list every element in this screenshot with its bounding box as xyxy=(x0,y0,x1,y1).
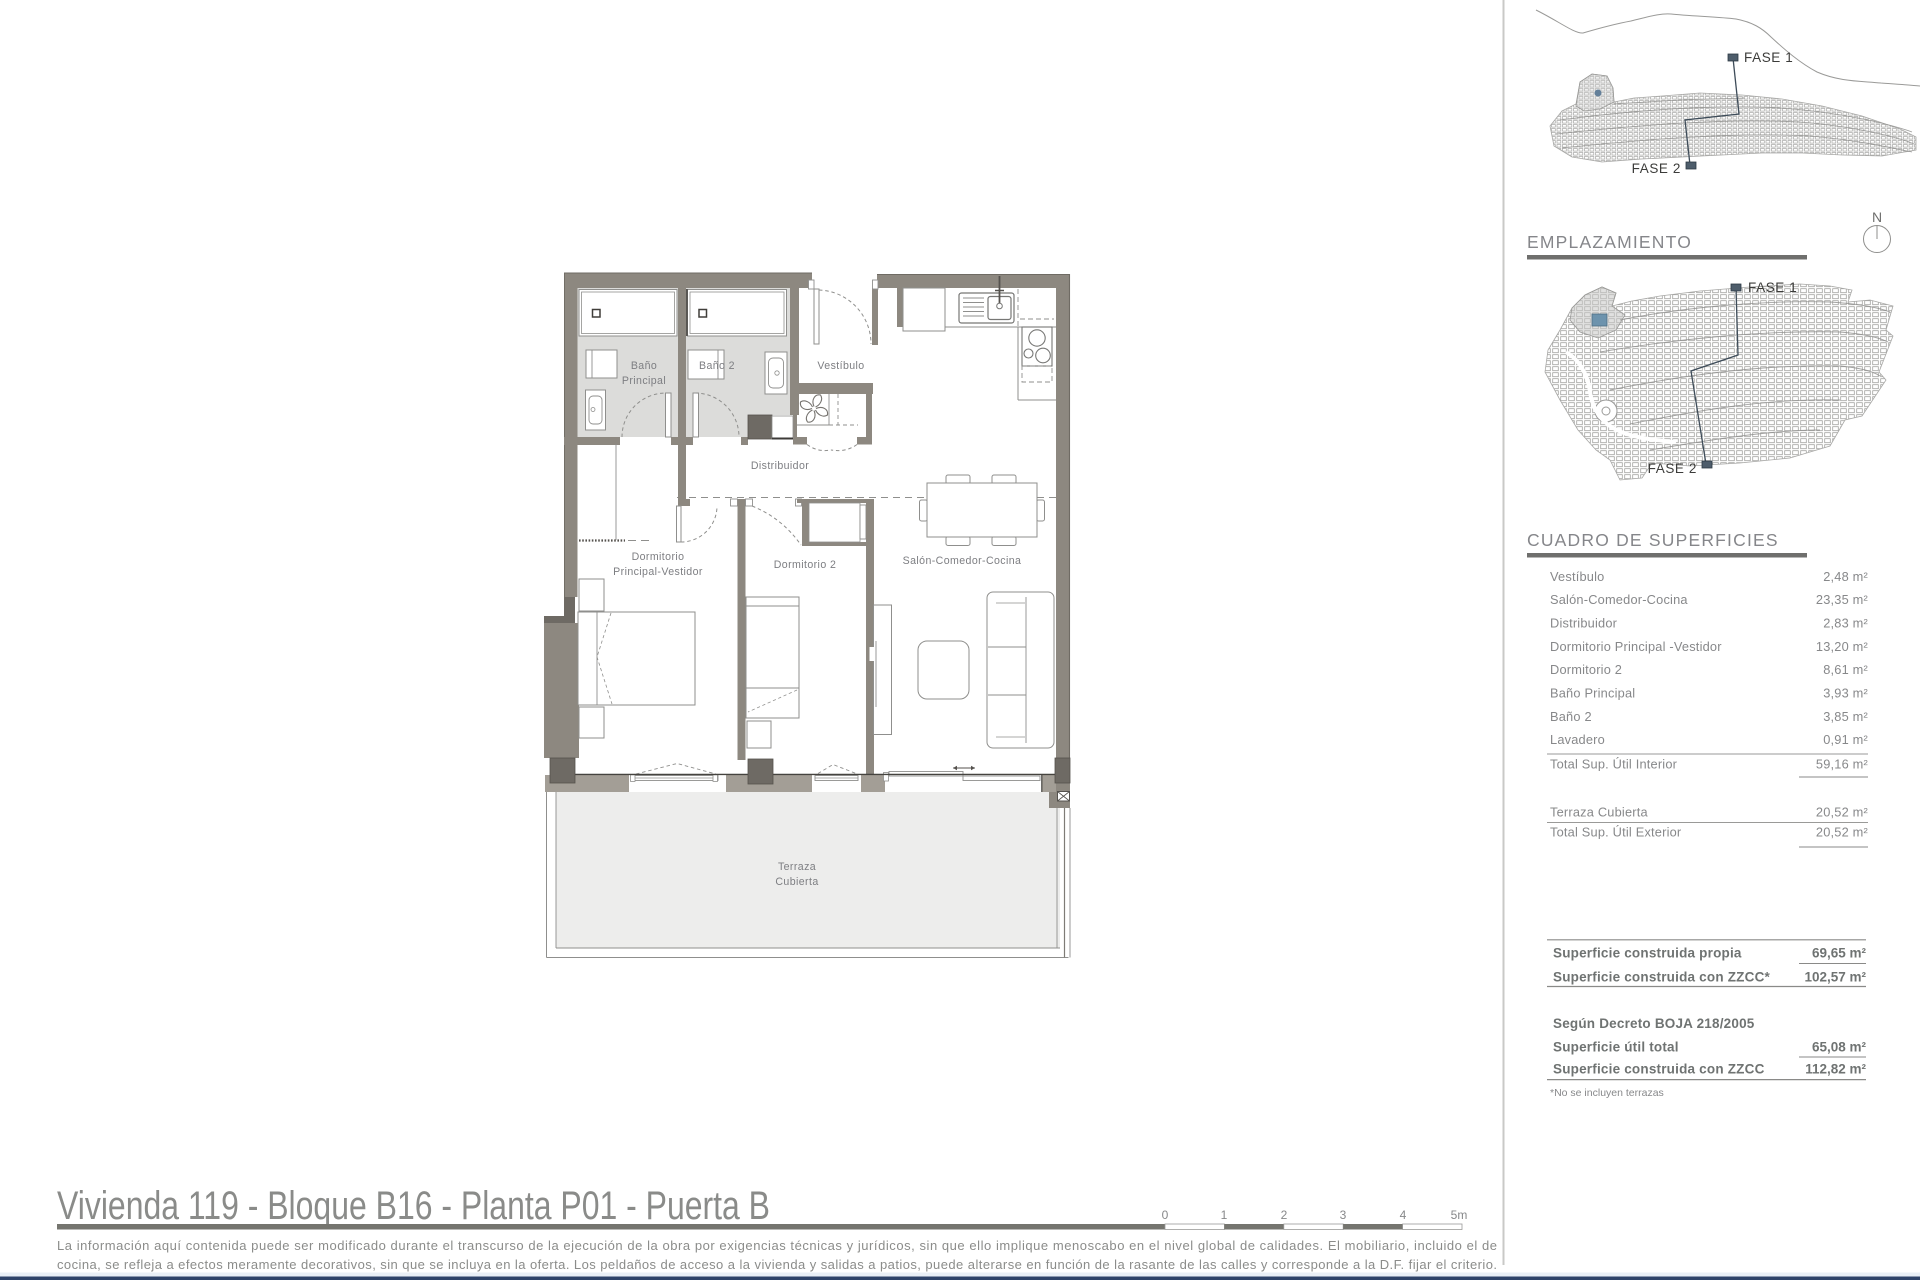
svg-text:Total Sup. Útil Interior: Total Sup. Útil Interior xyxy=(1550,756,1678,771)
svg-text:Lavadero: Lavadero xyxy=(1550,732,1605,747)
svg-text:20,52 m²: 20,52 m² xyxy=(1816,804,1869,819)
svg-text:FASE 1: FASE 1 xyxy=(1748,280,1797,295)
svg-text:CUADRO DE SUPERFICIES: CUADRO DE SUPERFICIES xyxy=(1527,530,1779,550)
svg-text:FASE 2: FASE 2 xyxy=(1632,161,1681,176)
svg-text:8,61 m²: 8,61 m² xyxy=(1823,662,1868,677)
svg-text:Salón-Comedor-Cocina: Salón-Comedor-Cocina xyxy=(903,555,1022,567)
svg-text:Principal: Principal xyxy=(622,375,666,387)
svg-text:5m: 5m xyxy=(1451,1208,1468,1222)
svg-text:FASE 1: FASE 1 xyxy=(1744,50,1793,65)
svg-text:Distribuidor: Distribuidor xyxy=(751,460,809,472)
svg-text:112,82 m²: 112,82 m² xyxy=(1805,1062,1866,1077)
svg-text:Según Decreto BOJA 218/2005: Según Decreto BOJA 218/2005 xyxy=(1553,1016,1755,1031)
svg-text:0: 0 xyxy=(1162,1208,1169,1222)
svg-text:Terraza: Terraza xyxy=(778,861,816,873)
svg-text:*No se incluyen terrazas: *No se incluyen terrazas xyxy=(1550,1087,1664,1099)
svg-text:La información aquí contenida: La información aquí contenida puede ser … xyxy=(57,1238,1497,1253)
svg-text:Dormitorio Principal -Vestidor: Dormitorio Principal -Vestidor xyxy=(1550,639,1722,654)
svg-text:Distribuidor: Distribuidor xyxy=(1550,616,1618,631)
svg-text:N: N xyxy=(1872,209,1882,225)
svg-text:Cubierta: Cubierta xyxy=(775,876,818,888)
svg-text:Dormitorio: Dormitorio xyxy=(632,551,685,563)
svg-text:69,65 m²: 69,65 m² xyxy=(1812,946,1867,961)
svg-text:Superficie útil total: Superficie útil total xyxy=(1553,1040,1679,1055)
svg-text:Dormitorio 2: Dormitorio 2 xyxy=(774,559,837,571)
svg-text:Baño: Baño xyxy=(631,360,657,372)
svg-text:1: 1 xyxy=(1221,1208,1228,1222)
svg-text:20,52 m²: 20,52 m² xyxy=(1816,824,1869,839)
svg-text:EMPLAZAMIENTO: EMPLAZAMIENTO xyxy=(1527,232,1692,252)
svg-text:59,16 m²: 59,16 m² xyxy=(1816,756,1869,771)
svg-text:3,85 m²: 3,85 m² xyxy=(1823,709,1868,724)
svg-text:cocina, se refleja a efectos m: cocina, se refleja a efectos meramente d… xyxy=(57,1257,1497,1272)
svg-text:Vestíbulo: Vestíbulo xyxy=(1550,569,1604,584)
svg-text:Principal-Vestidor: Principal-Vestidor xyxy=(613,566,703,578)
svg-text:FASE 2: FASE 2 xyxy=(1648,461,1697,476)
svg-text:2: 2 xyxy=(1281,1208,1288,1222)
svg-text:3: 3 xyxy=(1340,1208,1347,1222)
svg-text:Dormitorio 2: Dormitorio 2 xyxy=(1550,662,1622,677)
svg-text:Superficie construida con ZZCC: Superficie construida con ZZCC xyxy=(1553,1062,1765,1077)
svg-text:Superficie construida con ZZCC: Superficie construida con ZZCC* xyxy=(1553,970,1771,985)
svg-text:Salón-Comedor-Cocina: Salón-Comedor-Cocina xyxy=(1550,592,1688,607)
svg-text:4: 4 xyxy=(1400,1208,1407,1222)
svg-text:Baño Principal: Baño Principal xyxy=(1550,686,1635,701)
svg-text:Total Sup. Útil Exterior: Total Sup. Útil Exterior xyxy=(1550,824,1682,839)
svg-text:Vestíbulo: Vestíbulo xyxy=(817,360,864,372)
svg-text:2,48 m²: 2,48 m² xyxy=(1823,569,1868,584)
svg-text:13,20 m²: 13,20 m² xyxy=(1816,639,1869,654)
svg-text:102,57 m²: 102,57 m² xyxy=(1804,970,1866,985)
svg-text:Baño 2: Baño 2 xyxy=(1550,709,1592,724)
svg-text:0,91 m²: 0,91 m² xyxy=(1823,732,1868,747)
svg-text:23,35 m²: 23,35 m² xyxy=(1816,592,1869,607)
svg-text:Terraza Cubierta: Terraza Cubierta xyxy=(1550,804,1648,819)
svg-text:3,93 m²: 3,93 m² xyxy=(1823,686,1868,701)
svg-text:Vivienda 119 - Bloque B16 - Pl: Vivienda 119 - Bloque B16 - Planta P01 -… xyxy=(57,1184,770,1228)
svg-text:Superficie construida propia: Superficie construida propia xyxy=(1553,946,1742,961)
svg-text:65,08 m²: 65,08 m² xyxy=(1812,1040,1867,1055)
svg-text:Baño 2: Baño 2 xyxy=(699,360,735,372)
svg-text:2,83 m²: 2,83 m² xyxy=(1823,616,1868,631)
